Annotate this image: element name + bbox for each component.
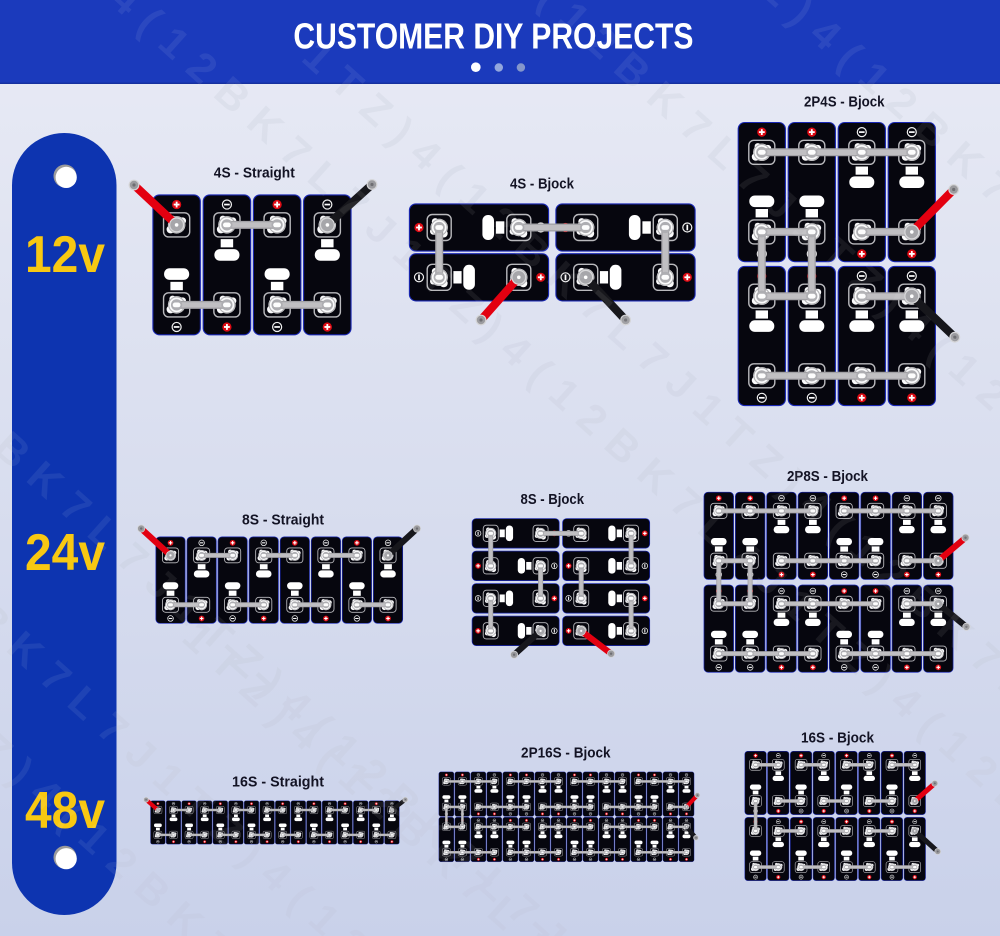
svg-text:16S - Bjock: 16S - Bjock xyxy=(801,730,875,747)
svg-text:8S - Straight: 8S - Straight xyxy=(242,512,324,529)
svg-text:8S - Bjock: 8S - Bjock xyxy=(521,491,585,508)
svg-text:12v: 12v xyxy=(25,226,105,284)
svg-text:2P16S - Bjock: 2P16S - Bjock xyxy=(521,745,611,762)
svg-text:16S - Straight: 16S - Straight xyxy=(232,773,324,790)
svg-text:4S - Bjock: 4S - Bjock xyxy=(510,176,575,193)
